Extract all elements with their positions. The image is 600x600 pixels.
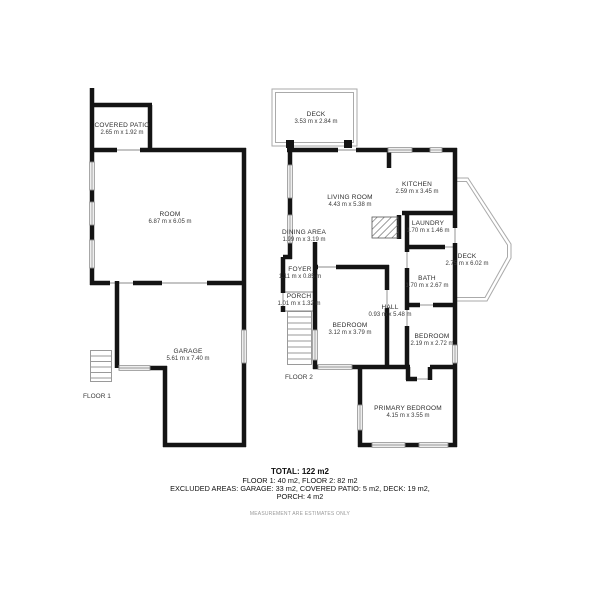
room-dims: 3.12 m x 3.79 m bbox=[328, 330, 371, 338]
room-dims: 0.93 m x 5.48 m bbox=[368, 312, 411, 320]
floor1-walls bbox=[90, 88, 246, 447]
room-label-kitchen: KITCHEN 2.59 m x 3.45 m bbox=[395, 181, 438, 197]
room-dims: 2.59 m x 3.45 m bbox=[395, 189, 438, 197]
room-label-foyer: FOYER 1.11 m x 0.85 m bbox=[279, 266, 322, 282]
room-dims: 6.87 m x 6.05 m bbox=[148, 219, 191, 227]
room-name: COVERED PATIO bbox=[94, 122, 149, 130]
floor1-decks-stairs bbox=[91, 351, 112, 382]
room-dims: 2.65 m x 1.92 m bbox=[94, 130, 149, 138]
room-label-laundry: LAUNDRY 1.70 m x 1.46 m bbox=[406, 220, 449, 236]
room-label-primary-bedroom: PRIMARY BEDROOM 4.15 m x 3.55 m bbox=[374, 405, 442, 421]
room-name: LAUNDRY bbox=[406, 220, 449, 228]
room-dims: 1.01 m x 1.32 m bbox=[277, 301, 320, 309]
summary-disclaimer: MEASUREMENT ARE ESTIMATES ONLY bbox=[0, 511, 600, 517]
room-label-bedroom-1: BEDROOM 3.12 m x 3.79 m bbox=[328, 322, 371, 338]
room-name: PORCH bbox=[277, 293, 320, 301]
floorplan-page: COVERED PATIO 2.65 m x 1.92 m ROOM 6.87 … bbox=[0, 0, 600, 600]
summary-excluded-2: PORCH: 4 m2 bbox=[0, 493, 600, 501]
room-name: BEDROOM bbox=[328, 322, 371, 330]
room-label-deck-top: DECK 3.53 m x 2.84 m bbox=[294, 111, 337, 127]
room-name: KITCHEN bbox=[395, 181, 438, 189]
room-dims: 5.61 m x 7.40 m bbox=[166, 356, 209, 364]
room-label-deck-right: DECK 2.75 m x 6.02 m bbox=[445, 253, 488, 269]
room-dims: 1.70 m x 1.46 m bbox=[406, 228, 449, 236]
room-name: BEDROOM bbox=[410, 333, 453, 341]
room-label-room: ROOM 6.87 m x 6.05 m bbox=[148, 211, 191, 227]
room-name: PRIMARY BEDROOM bbox=[374, 405, 442, 413]
chimney-hatch-box bbox=[372, 217, 398, 238]
floor1-windows bbox=[90, 162, 247, 370]
deck-posts bbox=[286, 140, 352, 148]
room-name: DINING AREA bbox=[282, 229, 326, 237]
room-dims: 1.70 m x 2.67 m bbox=[405, 283, 448, 291]
room-dims: 2.75 m x 6.02 m bbox=[445, 261, 488, 269]
room-name: GARAGE bbox=[166, 348, 209, 356]
room-label-bedroom-2: BEDROOM 2.19 m x 2.72 m bbox=[410, 333, 453, 349]
room-dims: 3.53 m x 2.84 m bbox=[294, 119, 337, 127]
room-label-living-room: LIVING ROOM 4.43 m x 5.38 m bbox=[327, 194, 373, 210]
room-label-covered-patio: COVERED PATIO 2.65 m x 1.92 m bbox=[94, 122, 149, 138]
room-label-porch: PORCH 1.01 m x 1.32 m bbox=[277, 293, 320, 309]
room-dims: 4.43 m x 5.38 m bbox=[327, 202, 373, 210]
room-name: DECK bbox=[294, 111, 337, 119]
room-label-bath: BATH 1.70 m x 2.67 m bbox=[405, 275, 448, 291]
room-name: ROOM bbox=[148, 211, 191, 219]
room-name: FOYER bbox=[279, 266, 322, 274]
room-name: LIVING ROOM bbox=[327, 194, 373, 202]
summary-total: TOTAL: 122 m2 bbox=[0, 467, 600, 476]
floor2-stairs bbox=[288, 312, 312, 365]
room-name: DECK bbox=[445, 253, 488, 261]
room-dims: 4.15 m x 3.55 m bbox=[374, 413, 442, 421]
room-label-dining-area: DINING AREA 1.99 m x 3.19 m bbox=[282, 229, 326, 245]
area-summary: TOTAL: 122 m2 FLOOR 1: 40 m2, FLOOR 2: 8… bbox=[0, 467, 600, 517]
room-name: HALL bbox=[368, 304, 411, 312]
floor1-label: FLOOR 1 bbox=[83, 393, 111, 400]
room-dims: 1.99 m x 3.19 m bbox=[282, 237, 326, 245]
room-dims: 2.19 m x 2.72 m bbox=[410, 341, 453, 349]
room-label-hall: HALL 0.93 m x 5.48 m bbox=[368, 304, 411, 320]
room-name: BATH bbox=[405, 275, 448, 283]
floor2-label: FLOOR 2 bbox=[285, 374, 313, 381]
room-label-garage: GARAGE 5.61 m x 7.40 m bbox=[166, 348, 209, 364]
room-dims: 1.11 m x 0.85 m bbox=[279, 274, 322, 282]
